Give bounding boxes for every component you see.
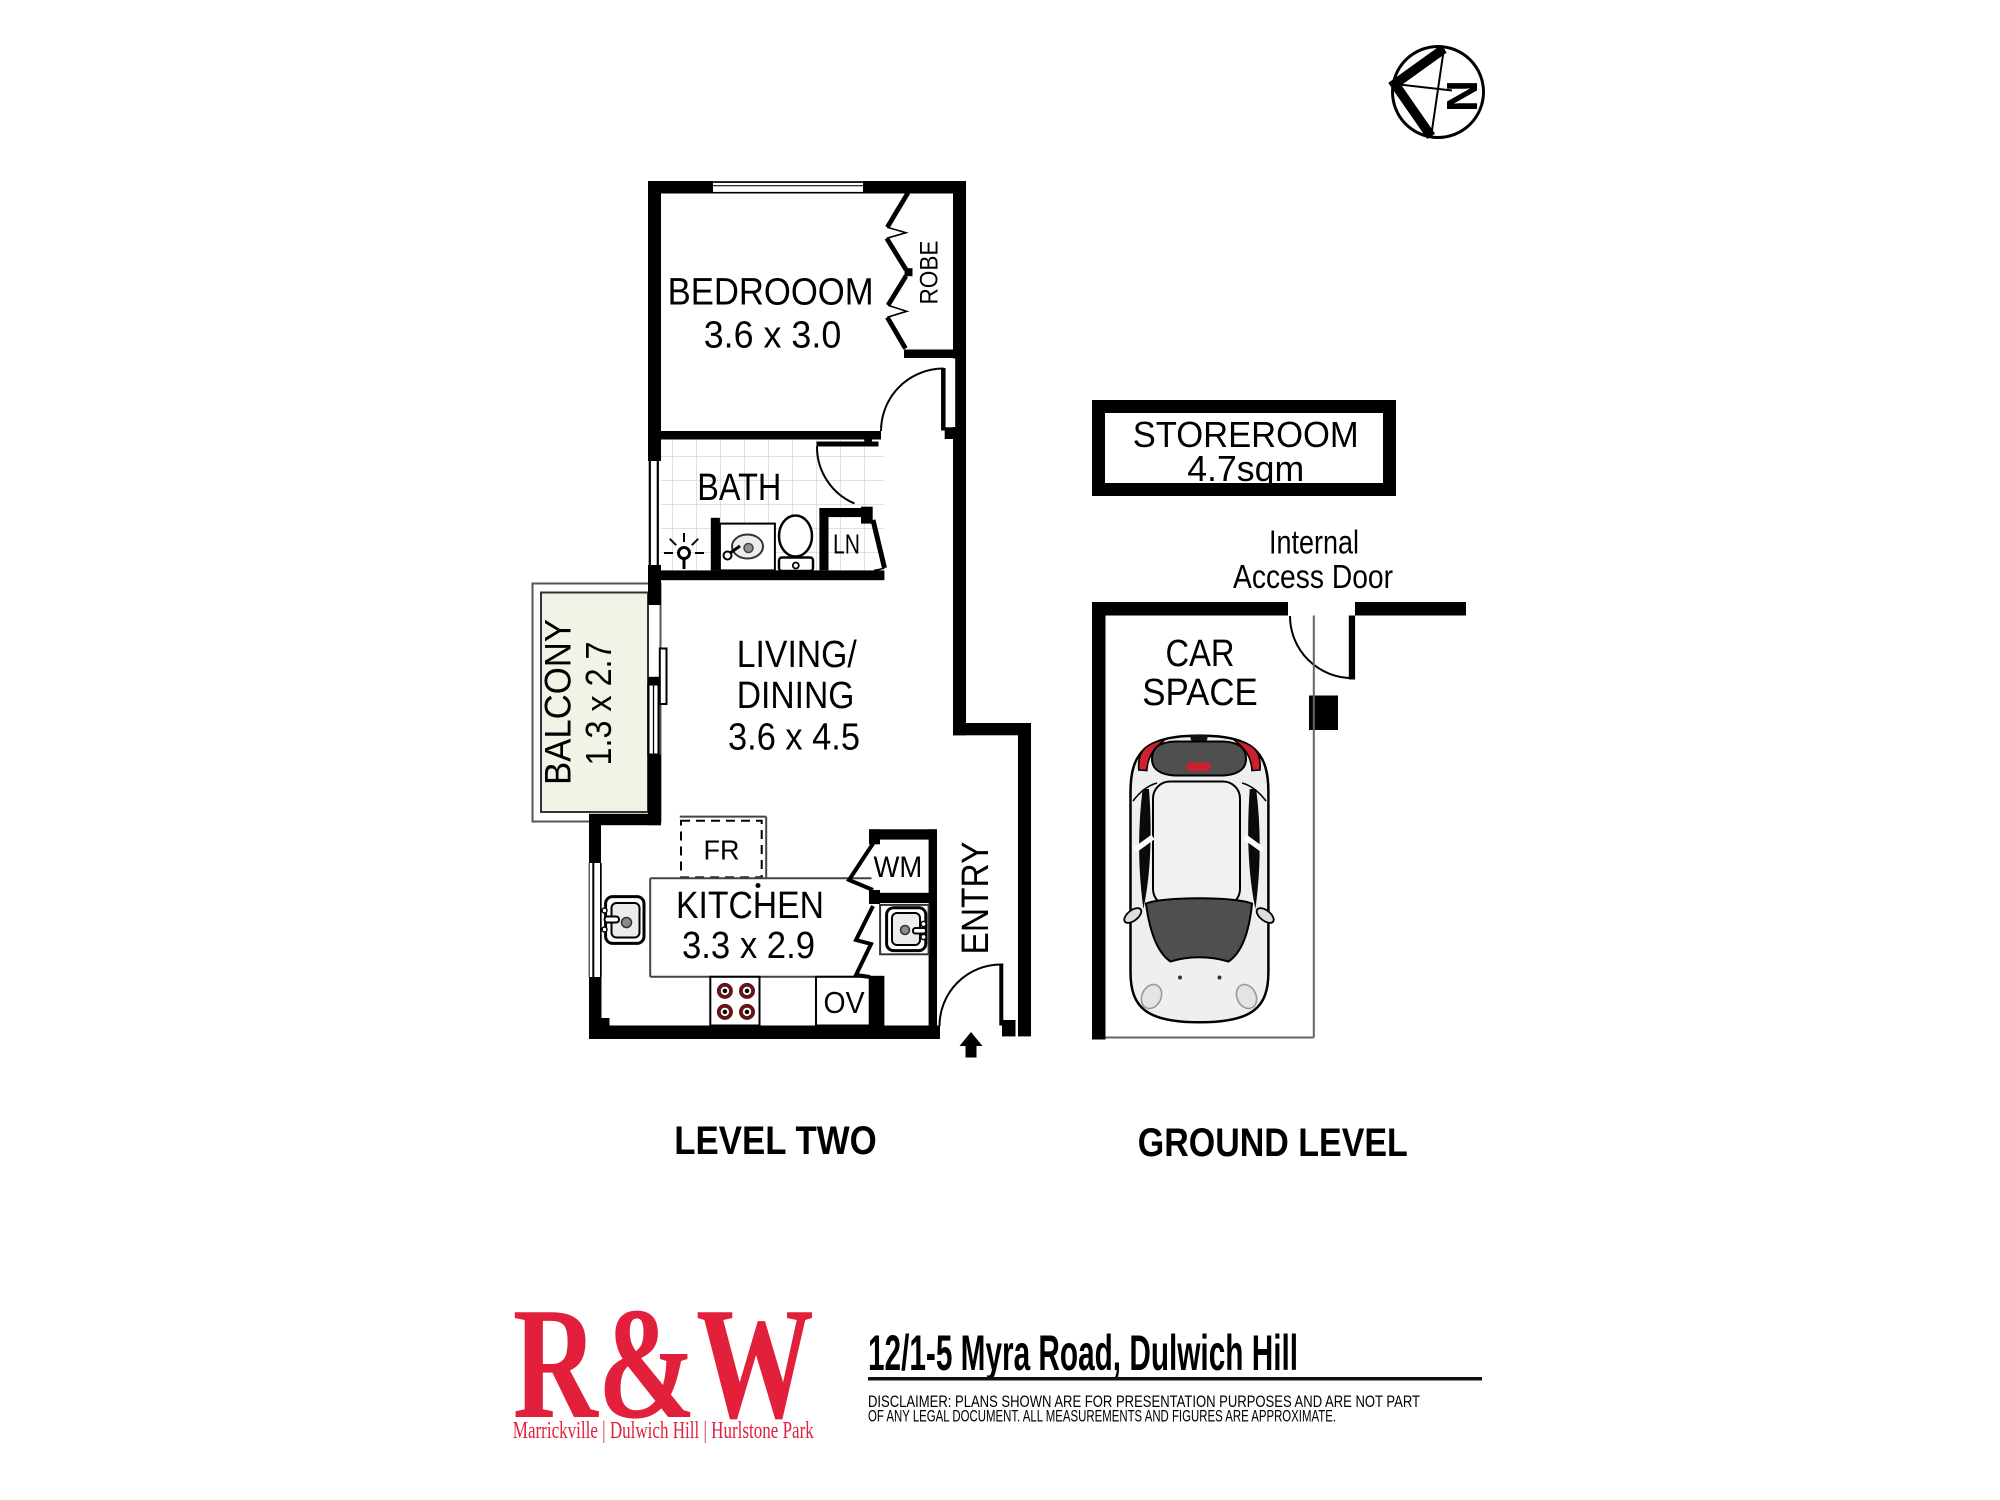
svg-text:4.7sqm: 4.7sqm — [1187, 448, 1304, 489]
svg-text:LIVING/: LIVING/ — [737, 634, 857, 676]
svg-text:ROBE: ROBE — [916, 241, 944, 305]
svg-text:BEDROOOM: BEDROOOM — [668, 272, 874, 314]
svg-text:LN: LN — [833, 529, 860, 560]
svg-text:OV: OV — [824, 985, 865, 1020]
svg-text:ENTRY: ENTRY — [955, 842, 997, 955]
svg-text:1.3 x 2.7: 1.3 x 2.7 — [578, 642, 619, 766]
svg-text:3.6 x 4.5: 3.6 x 4.5 — [728, 717, 860, 759]
svg-text:N: N — [1437, 80, 1486, 112]
svg-text:LEVEL TWO: LEVEL TWO — [674, 1119, 877, 1163]
svg-text:3.6 x 3.0: 3.6 x 3.0 — [704, 315, 842, 357]
svg-text:GROUND LEVEL: GROUND LEVEL — [1138, 1121, 1408, 1165]
svg-text:SPACE: SPACE — [1142, 672, 1258, 714]
svg-text:OF ANY LEGAL DOCUMENT. ALL MEA: OF ANY LEGAL DOCUMENT. ALL MEASUREMENTS … — [868, 1407, 1336, 1425]
svg-text:Marrickville | Dulwich Hill |: Marrickville | Dulwich Hill | Hurlstone … — [513, 1418, 814, 1444]
svg-text:Access Door: Access Door — [1233, 558, 1393, 595]
svg-text:BALCONY: BALCONY — [538, 619, 579, 785]
svg-text:WM: WM — [874, 851, 923, 884]
svg-text:KITCHEN: KITCHEN — [676, 885, 824, 927]
svg-text:3.3 x 2.9: 3.3 x 2.9 — [682, 925, 815, 967]
svg-text:DINING: DINING — [737, 675, 855, 717]
svg-text:Internal: Internal — [1269, 524, 1359, 561]
svg-text:CAR: CAR — [1166, 633, 1235, 675]
svg-text:FR: FR — [704, 835, 740, 866]
svg-text:12/1-5 Myra Road, Dulwich Hill: 12/1-5 Myra Road, Dulwich Hill — [868, 1325, 1298, 1381]
svg-text:BATH: BATH — [697, 467, 781, 509]
